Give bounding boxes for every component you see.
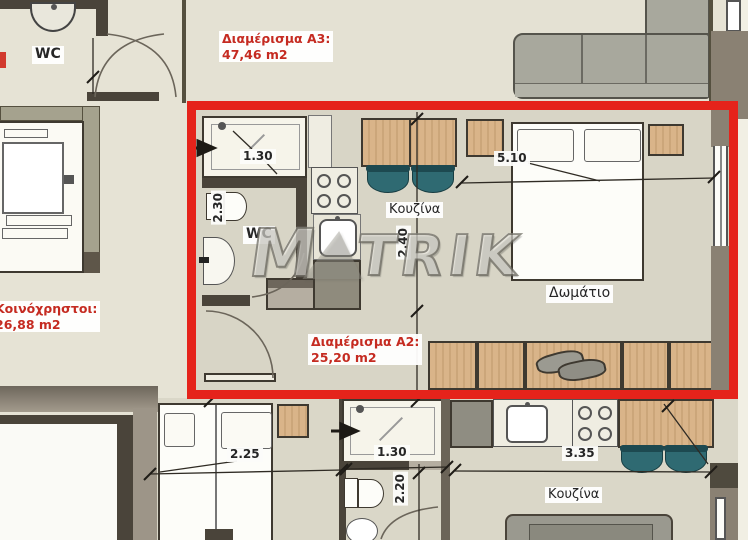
wardrobe-unit [669,341,714,390]
dimension-bottom-bed-width: 2.25 [227,447,263,462]
faucet-dot [525,402,530,407]
common-area-title: Κοινόχρηστοι: [0,301,97,317]
chair-icon [412,166,454,193]
couch-seat [529,524,653,540]
kitchen-counter-wood [618,399,714,448]
floor-plan: Διαμέρισμα A3: 47,46 m2 Διαμέρισμα A2: 2… [0,0,748,540]
door-arc [95,34,164,97]
chair-back [411,165,455,172]
window-bedroom [713,146,728,247]
wall-a3-left [182,0,186,103]
sofa-cushion-divider [645,35,647,83]
wall-room-bl-right [117,415,133,540]
burner-icon [337,174,351,188]
chair-icon [367,166,409,193]
dimension-bottom-shower-width: 1.30 [374,445,410,460]
bed-divider [215,405,217,540]
dimension-a2-shower-width: 1.30 [240,149,276,164]
window-bottom-right [715,497,726,540]
elevator-handle [64,175,74,184]
label-common-area: Κοινόχρηστοι: 26,88 m2 [0,301,100,332]
elevator-door-bar [4,129,48,138]
kitchen-counter-gray [450,400,493,448]
kitchen-sink-bottom [493,399,573,447]
watermark-letters-trik: TRIK [354,230,527,283]
apartment-a3-title: Διαμέρισμα A3: [222,31,330,47]
wall-elevator-corner [82,252,100,273]
dimension-bottom-wc-depth: 2.20 [393,472,408,506]
dimension-a2-bedroom-width: 5.10 [494,151,530,166]
faucet-dot [335,216,340,221]
toilet-bowl-bottom [358,479,384,508]
wall-under-shower-a2 [202,178,307,188]
window-top-right [726,0,741,32]
shower-head [356,405,364,413]
dimension-a2-wc-width: 2.30 [211,191,226,225]
stove-a2 [311,167,358,214]
burner-icon [317,194,331,208]
wall-bedroom-right-top [711,111,730,147]
apartment-a3-area: 47,46 m2 [222,47,330,63]
door-arc [107,34,176,97]
wardrobe-unit [477,341,525,390]
elevator-cab [2,142,64,214]
kitchen-counter-strip-a2 [308,115,332,168]
single-beds [158,403,273,540]
wall-bed-end [205,529,233,540]
room-bottom-left [0,424,117,540]
label-bedroom-a2: Δωμάτιο [546,285,613,303]
matrik-watermark: M TRIK [246,224,528,283]
wash-basin-bottom [346,518,378,540]
label-kitchen-bottom: Κουζίνα [545,487,602,503]
apartment-a2-area: 25,20 m2 [311,350,419,366]
wall-bath-right [441,398,450,540]
toilet-tank-bottom [344,478,358,508]
label-apartment-a2: Διαμέρισμα A2: 25,20 m2 [308,334,422,365]
burner-icon [598,406,612,420]
nightstand-icon [648,124,684,156]
chair-icon [665,446,707,473]
wall-wc-bottom-a2 [202,295,250,306]
wall-under-shower-bottom [339,461,409,470]
sofa-cushion-divider [581,35,583,83]
sink-basin [506,405,548,443]
table-divider [409,120,411,165]
burner-icon [598,427,612,441]
double-bed [511,122,644,281]
chair-back [664,445,708,452]
apartment-a2-title: Διαμέρισμα A2: [311,334,419,350]
pillow-icon [221,412,272,449]
watermark-a-triangle-icon [302,231,369,279]
chair-icon [621,446,663,473]
dining-table-a2 [361,118,457,167]
wall-bedroom-right-bottom [711,246,730,391]
burner-icon [578,406,592,420]
toilet-bowl-a2 [224,192,247,221]
faucet-a2 [199,257,209,263]
wardrobe-unit [622,341,669,390]
couch-bottom [505,514,673,540]
label-kitchen-a2: Κουζίνα [386,202,443,218]
sofa-icon [513,33,710,99]
elevator-sill-2 [2,228,68,239]
common-area-size: 26,88 m2 [0,317,97,333]
wall-stub [96,0,108,36]
label-wc-top-left: WC [32,46,64,64]
label-apartment-a3: Διαμέρισμα A3: 47,46 m2 [219,31,333,62]
faucet-dot [51,4,57,10]
pillow-icon [164,413,195,447]
burner-icon [578,427,592,441]
door-lintel [87,92,159,101]
window-mullion [720,146,722,247]
shower-room-a2 [202,116,307,178]
chair-back [366,165,410,172]
sofa-front-band [515,83,708,97]
nightstand-icon [277,404,309,438]
wardrobe-unit [428,341,477,390]
burner-icon [317,174,331,188]
red-mark [0,52,6,68]
wall-bottom-right-dark [710,463,738,489]
sofa-back-section [645,0,710,35]
entrance-door-leaf [204,373,276,382]
wall-shaft-strip [133,408,157,540]
wall-room-bl-top [0,415,133,424]
dimension-bottom-kitchen-width: 3.35 [562,446,598,461]
wall-top-right-brown [711,31,748,119]
shower-head [218,122,226,130]
elevator-sill-1 [6,215,72,226]
wall-elevator-right [82,106,100,273]
pillow-icon [584,129,641,162]
wall-door-gap [409,461,445,470]
burner-icon [337,194,351,208]
stove-bottom [572,399,618,447]
chair-back [620,445,664,452]
